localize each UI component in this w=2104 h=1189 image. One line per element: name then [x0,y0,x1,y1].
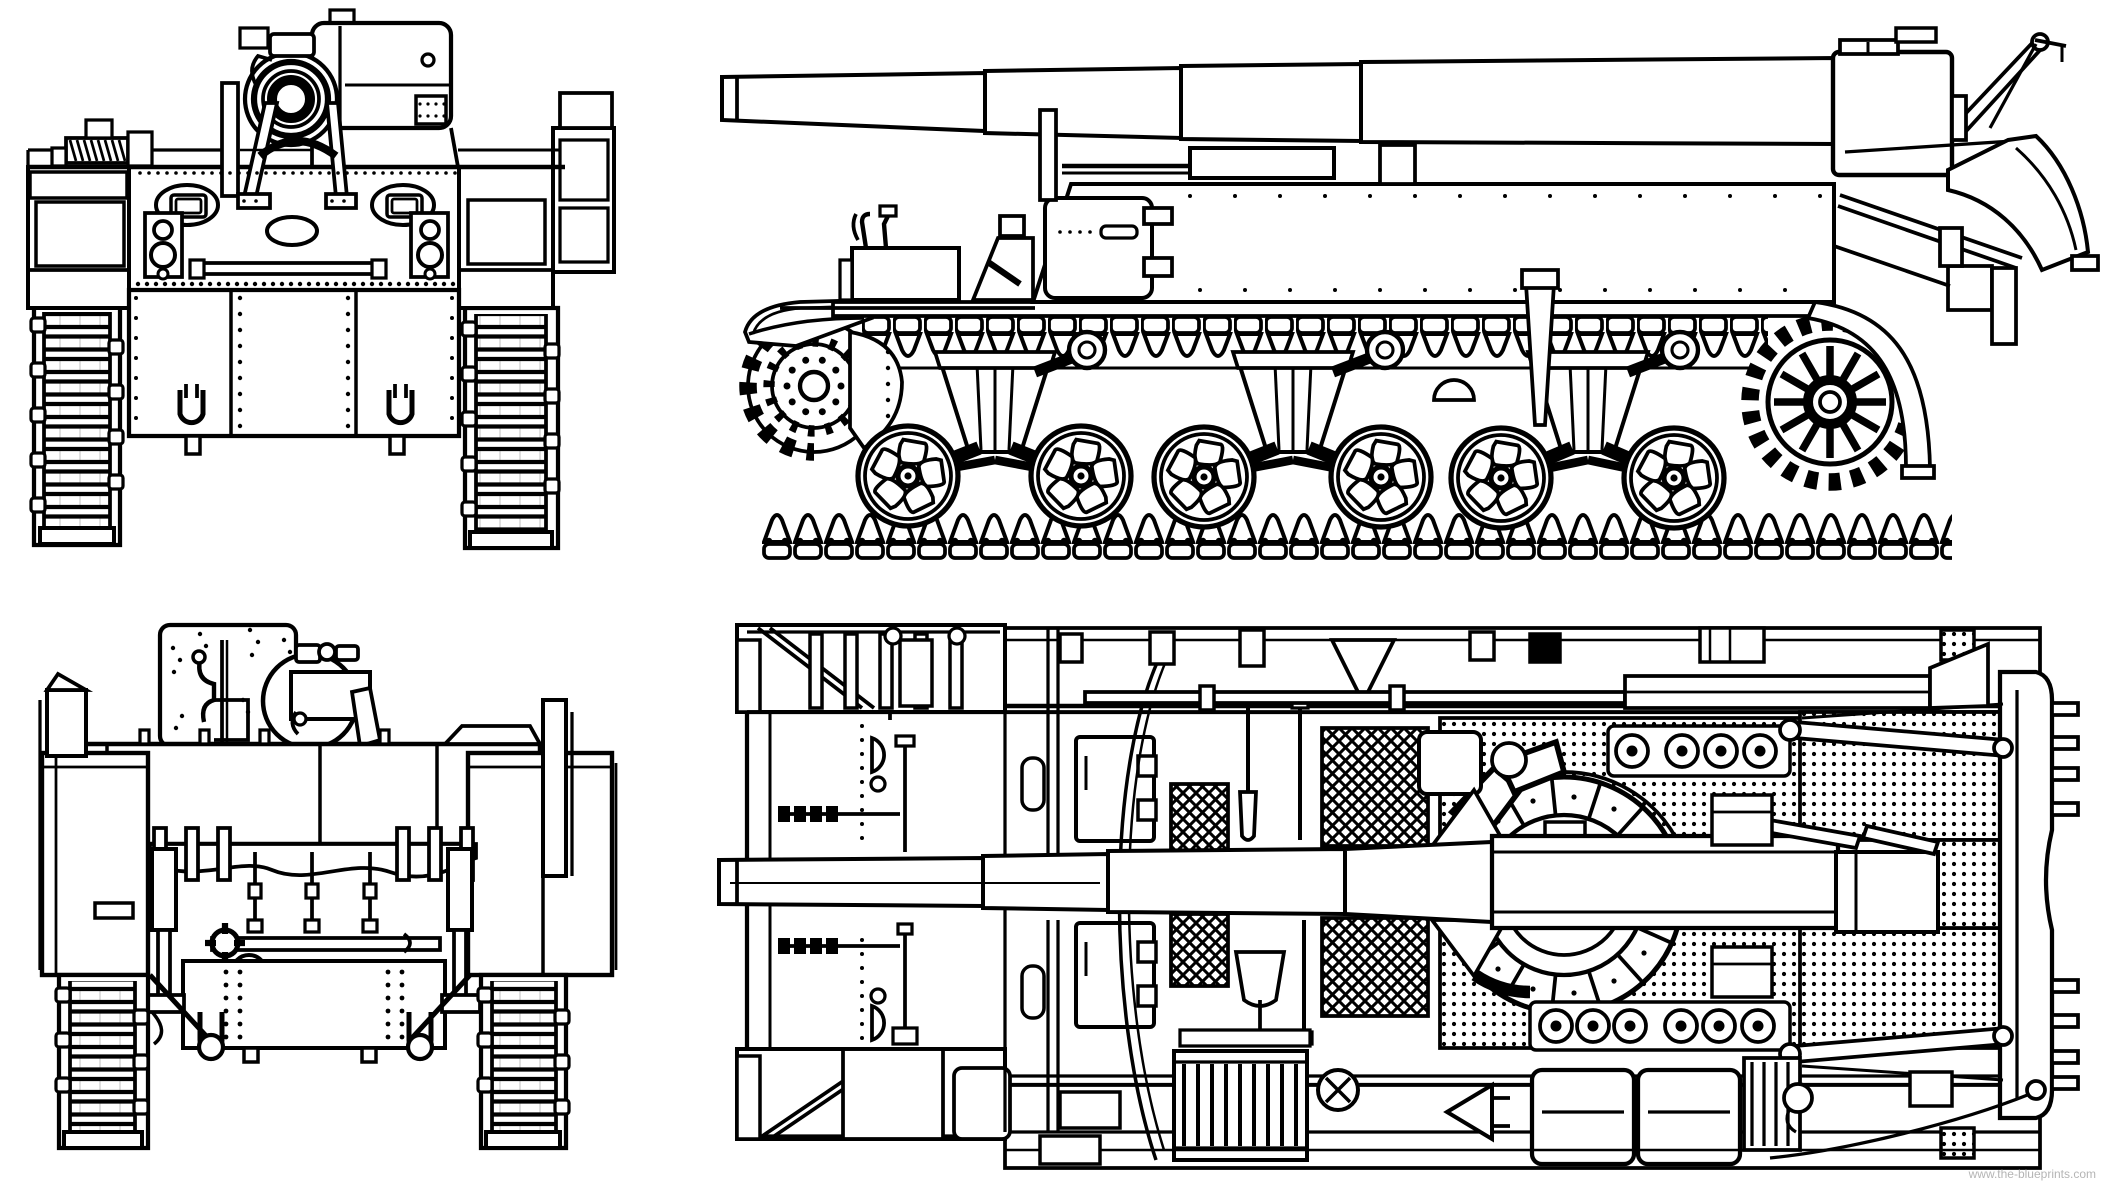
svg-text:www.the-blueprints.com: www.the-blueprints.com [1968,1167,2096,1181]
